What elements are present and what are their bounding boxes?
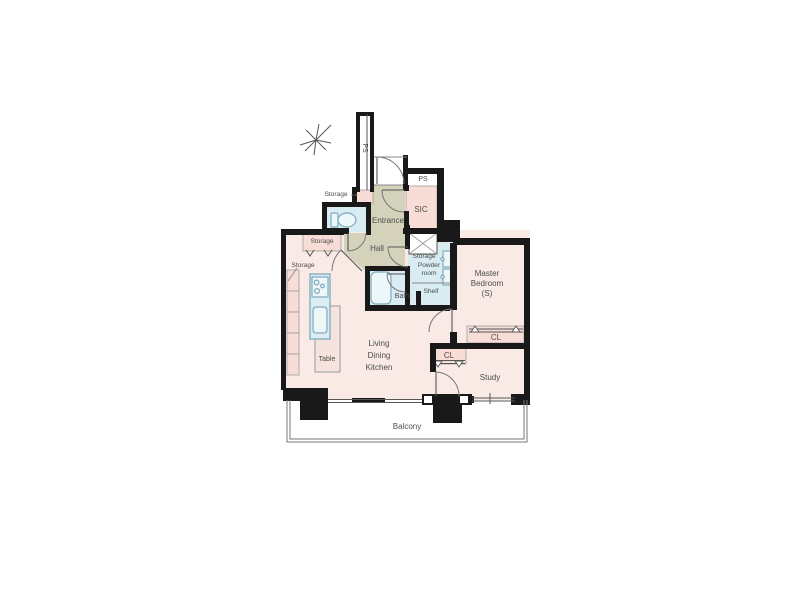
label-table: Table xyxy=(319,356,336,363)
label-storage-counter: Storage xyxy=(291,262,314,269)
label-ldk-2: Dining xyxy=(368,351,391,360)
label-sic: SIC xyxy=(414,205,428,214)
label-storage-hatched: Storage xyxy=(412,253,435,260)
label-cl-study: CL xyxy=(444,351,455,360)
floorplan-drawing: PS PS SIC Storage Entrance Hall Storage … xyxy=(0,0,801,600)
label-hall: Hall xyxy=(370,244,384,253)
label-balcony: Balcony xyxy=(393,422,421,431)
label-ldk-1: Living xyxy=(369,339,390,348)
label-powder-1: Powder xyxy=(418,262,441,269)
label-bath: Bath xyxy=(395,293,410,300)
label-ps-shaft: PS xyxy=(361,143,368,153)
hatched-storage-icon xyxy=(409,233,437,254)
label-study: Study xyxy=(480,373,500,382)
label-master-1: Master xyxy=(475,269,500,278)
label-master-2: Bedroom xyxy=(471,279,504,288)
sink-icon xyxy=(313,307,327,333)
toilet-icon xyxy=(331,213,356,227)
label-storage-entry: Storage xyxy=(324,191,347,198)
compass-star-icon xyxy=(300,124,331,155)
room-entrance xyxy=(371,185,405,233)
label-powder-2: room xyxy=(421,270,437,277)
label-cl-master: CL xyxy=(491,333,502,342)
label-ldk-3: Kitchen xyxy=(366,363,393,372)
floorplan-page: PS PS SIC Storage Entrance Hall Storage … xyxy=(0,0,801,600)
label-master-3: (S) xyxy=(482,289,493,298)
label-entrance: Entrance xyxy=(372,216,405,225)
label-shelf: Shelf xyxy=(423,288,438,295)
label-ps-meter: PS xyxy=(418,176,428,183)
bathtub-icon xyxy=(371,272,391,304)
entry-door xyxy=(377,157,404,184)
kitchen-counter-icon xyxy=(310,274,330,339)
label-storage-hall: Storage xyxy=(310,238,333,245)
